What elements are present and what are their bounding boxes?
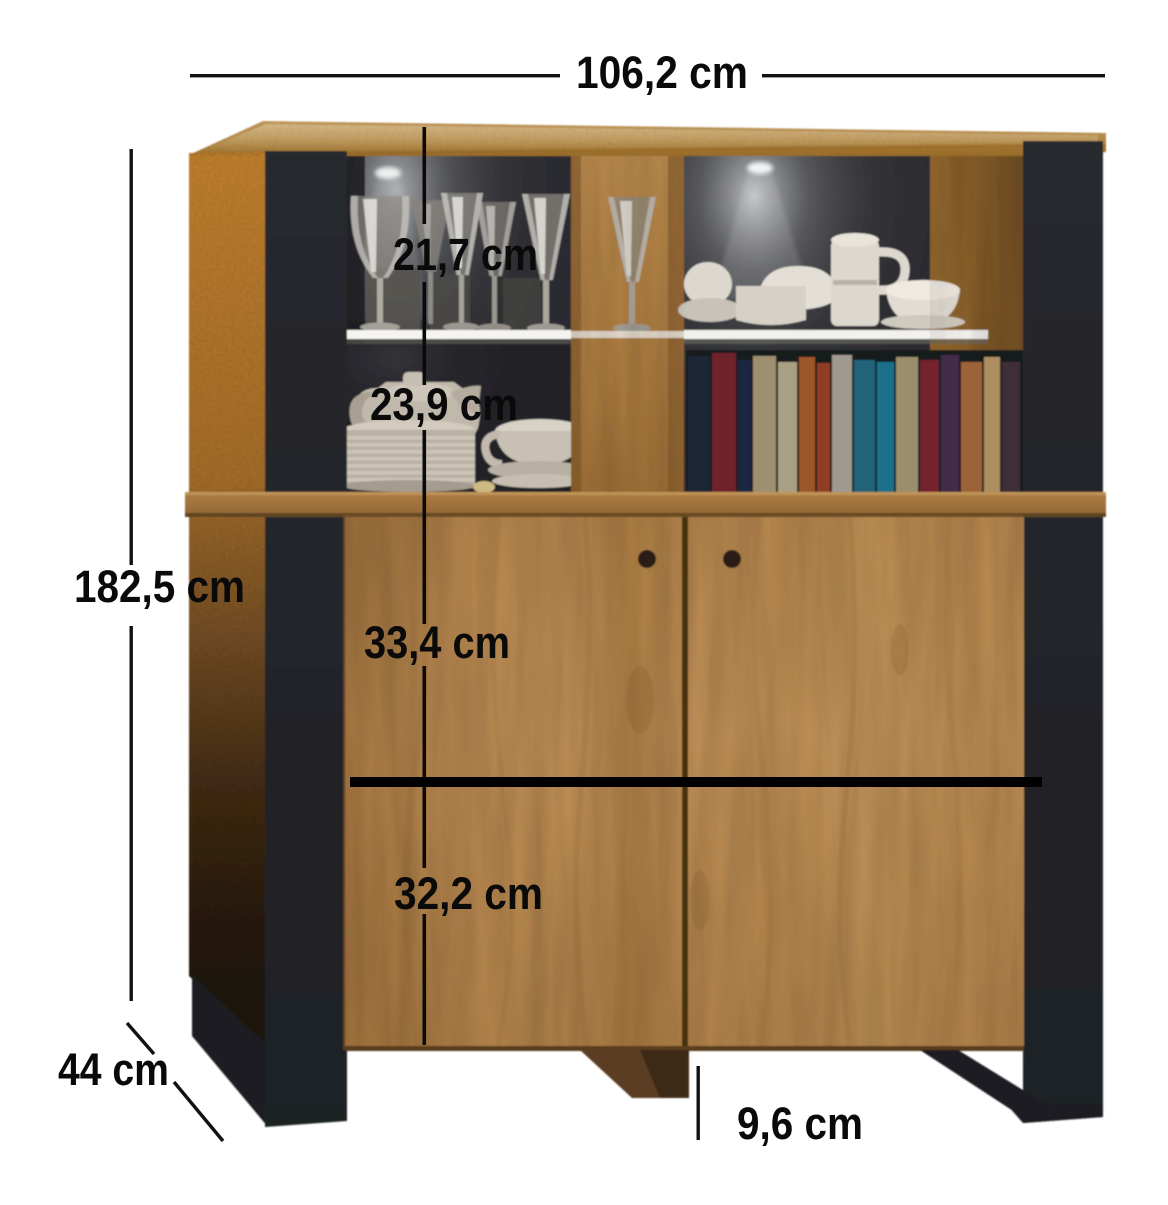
svg-text:21,7 cm: 21,7 cm [393, 229, 538, 280]
svg-text:106,2 cm: 106,2 cm [576, 47, 748, 98]
svg-text:9,6 cm: 9,6 cm [737, 1098, 863, 1149]
svg-text:23,9 cm: 23,9 cm [370, 379, 518, 430]
svg-text:33,4 cm: 33,4 cm [364, 617, 510, 668]
svg-text:44 cm: 44 cm [58, 1044, 169, 1095]
svg-text:182,5 cm: 182,5 cm [74, 561, 245, 612]
svg-text:32,2 cm: 32,2 cm [394, 868, 543, 919]
